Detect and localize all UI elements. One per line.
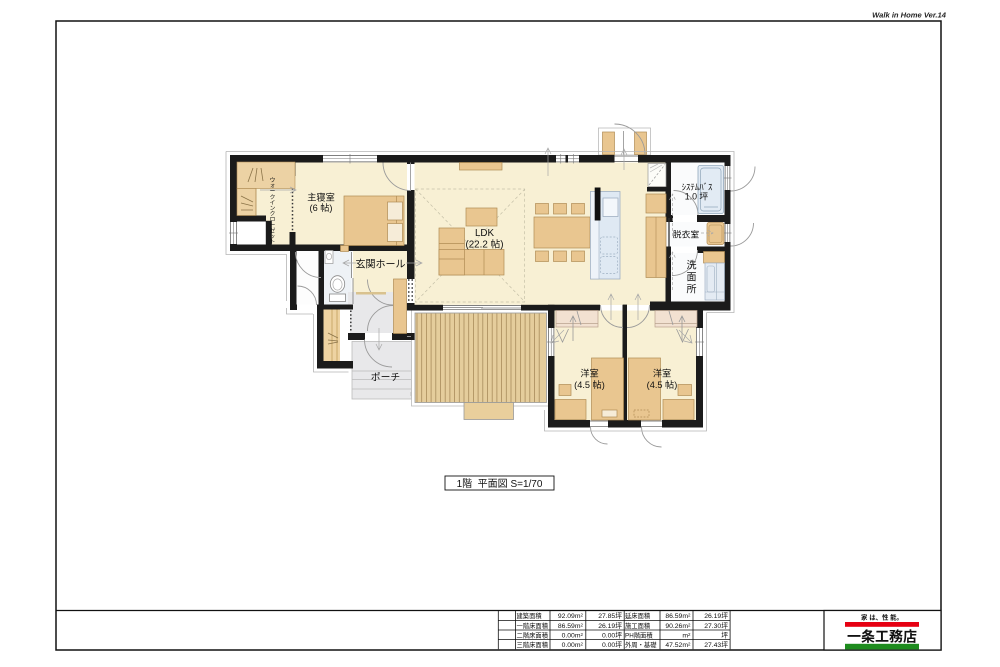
svg-text:所: 所 (687, 281, 697, 296)
svg-text:(4.5 帖): (4.5 帖) (574, 377, 605, 391)
svg-text:27.43坪: 27.43坪 (704, 639, 728, 649)
svg-text:PH階面積: PH階面積 (625, 630, 653, 639)
svg-text:0.00坪: 0.00坪 (602, 629, 622, 639)
svg-text:(4.5 帖): (4.5 帖) (647, 377, 678, 391)
svg-text:家 は、性 能。: 家 は、性 能。 (861, 613, 903, 622)
svg-text:二階床面積: 二階床面積 (517, 630, 549, 639)
svg-text:脱衣室: 脱衣室 (673, 228, 700, 241)
svg-text:三階床面積: 三階床面積 (517, 640, 549, 649)
svg-text:(22.2 帖): (22.2 帖) (465, 237, 503, 251)
svg-text:92.09m2: 92.09m2 (558, 610, 584, 620)
svg-text:一階床面積: 一階床面積 (517, 621, 549, 630)
svg-text:0.00m2: 0.00m2 (562, 629, 584, 639)
svg-text:玄関ホール: 玄関ホール (356, 256, 406, 271)
svg-text:47.52m2: 47.52m2 (665, 639, 691, 649)
svg-text:1.0 坪: 1.0 坪 (685, 190, 709, 203)
svg-text:建築面積: 建築面積 (517, 611, 543, 620)
svg-text:90.26m2: 90.26m2 (665, 620, 691, 630)
svg-text:坪: 坪 (721, 629, 728, 639)
svg-text:0.00m2: 0.00m2 (562, 639, 584, 649)
svg-text:延床面積: 延床面積 (625, 611, 651, 620)
svg-text:86.59m2: 86.59m2 (558, 620, 584, 630)
svg-text:26.19坪: 26.19坪 (704, 610, 728, 620)
svg-text:(6 帖): (6 帖) (310, 200, 333, 214)
svg-text:27.30坪: 27.30坪 (704, 620, 728, 630)
svg-text:ポーチ: ポーチ (371, 370, 400, 384)
svg-text:1階 平面図 S=1/70: 1階 平面図 S=1/70 (457, 475, 543, 490)
svg-text:0.00坪: 0.00坪 (602, 639, 622, 649)
svg-text:86.59m2: 86.59m2 (665, 610, 691, 620)
svg-text:外周・基礎: 外周・基礎 (625, 640, 657, 649)
svg-text:施工面積: 施工面積 (625, 621, 651, 630)
svg-text:27.85坪: 27.85坪 (598, 610, 622, 620)
svg-text:26.19坪: 26.19坪 (598, 620, 622, 630)
svg-text:ト: ト (270, 237, 276, 246)
svg-text:Walk in Home Ver.14: Walk in Home Ver.14 (872, 11, 947, 20)
svg-text:一条工務店: 一条工務店 (847, 627, 917, 647)
